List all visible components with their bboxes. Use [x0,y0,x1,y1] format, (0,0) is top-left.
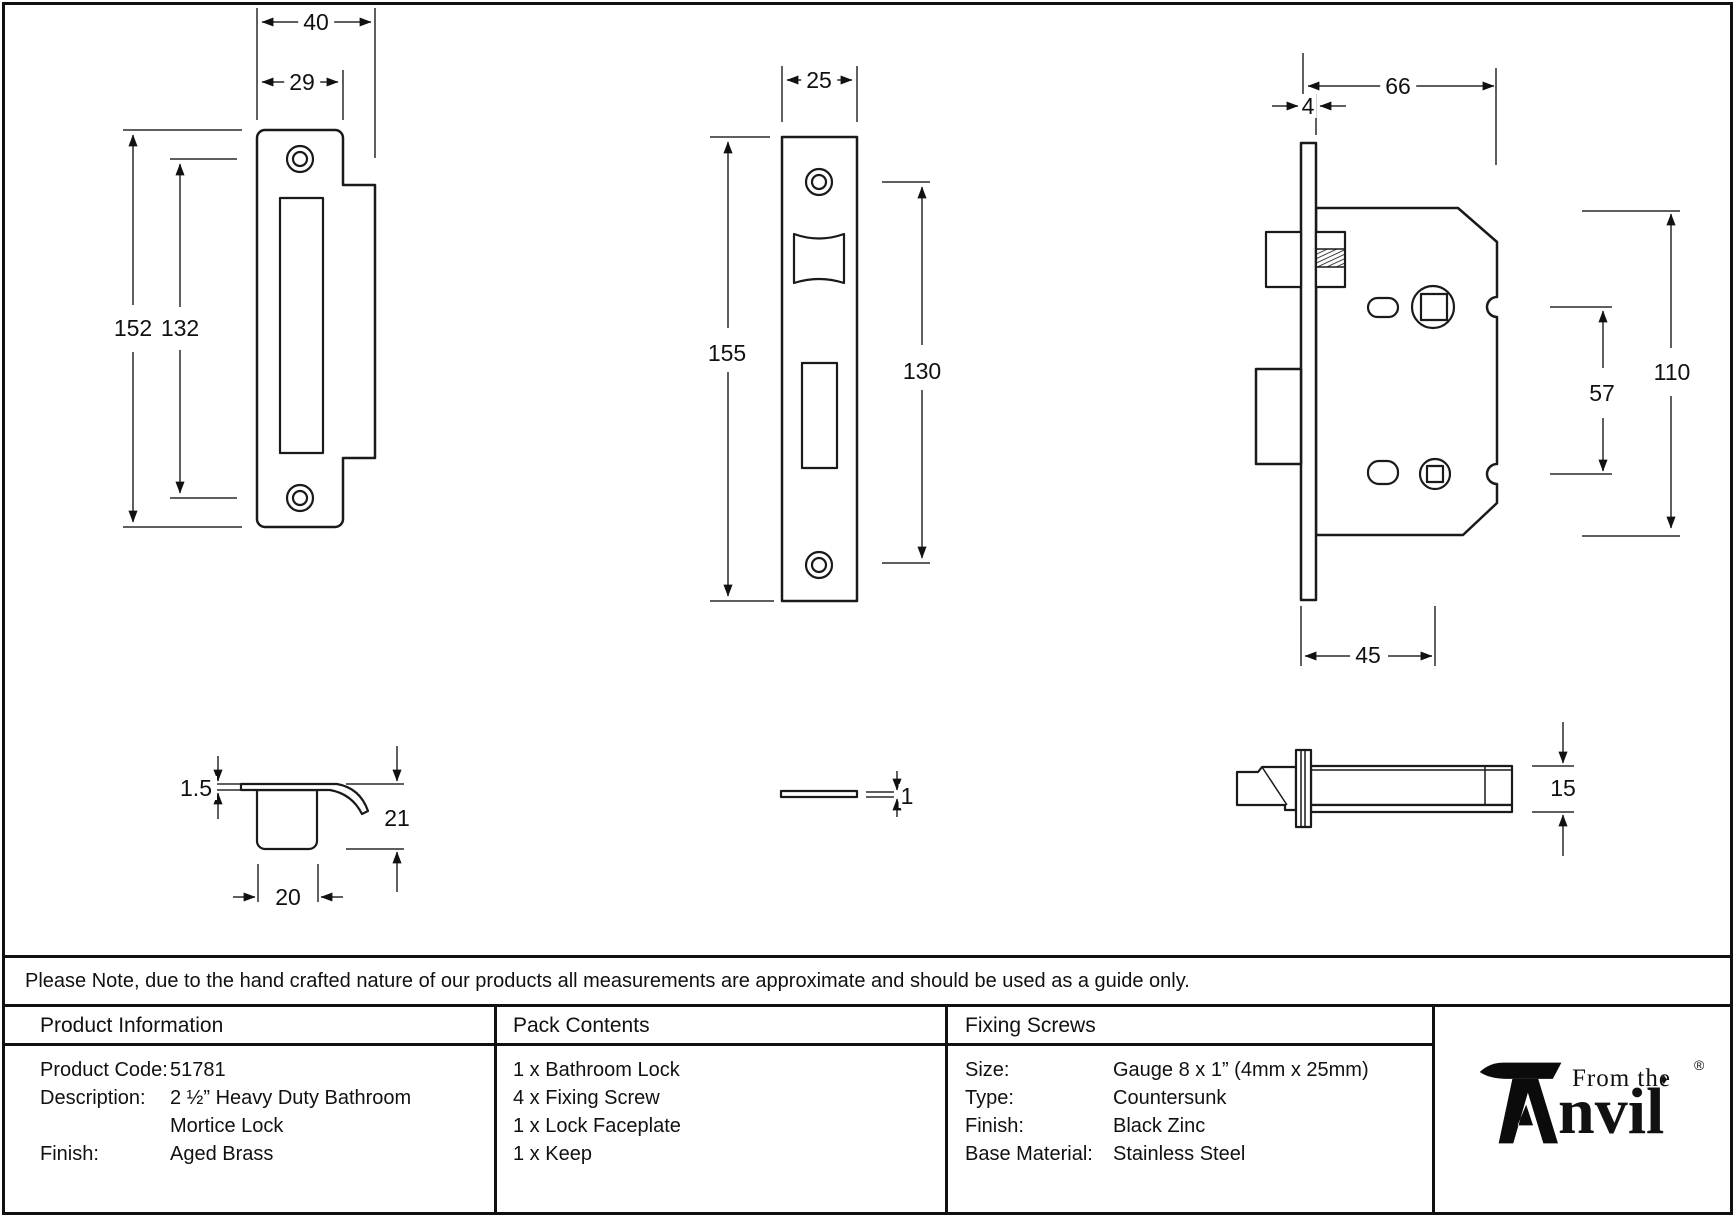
logo-name: nvil [1558,1077,1664,1147]
finish-label: Finish: [40,1141,99,1167]
pack-item-3: 1 x Lock Faceplate [513,1113,681,1139]
description-value-line1: 2 ½” Heavy Duty Bathroom [170,1085,411,1111]
dim-faceplate-thickness: 1 [899,784,916,808]
lock-side-faceplate [1296,750,1311,827]
measurement-note: Please Note, due to the hand crafted nat… [5,955,1730,1007]
lock-side-case [1311,766,1512,805]
product-code-label: Product Code: [40,1057,168,1083]
pack-item-1: 1 x Bathroom Lock [513,1057,680,1083]
description-value-line2: Mortice Lock [170,1113,283,1139]
dim-faceplate-height: 155 [703,341,751,365]
anvil-icon [1478,1060,1564,1146]
fixing-slot-top [1368,298,1398,317]
faceplate-side-bar [781,791,857,797]
finish-value: Aged Brass [170,1141,273,1167]
screw-finish-label: Finish: [965,1113,1024,1139]
faceplate-bolt-cutout [794,234,844,283]
screw-finish-value: Black Zinc [1113,1113,1205,1139]
lock-side-base-plate [1311,805,1512,812]
pack-item-2: 4 x Fixing Screw [513,1085,660,1111]
dim-keep-overall-height: 152 [109,316,157,340]
table-divider-1 [494,1007,497,1212]
screw-type-value: Countersunk [1113,1085,1226,1111]
table-divider-2 [945,1007,948,1212]
screw-material-label: Base Material: [965,1141,1093,1167]
keep-box [257,790,317,849]
dim-keep-depth: 21 [379,806,415,830]
product-code-value: 51781 [170,1057,226,1083]
dim-lock-case-height: 110 [1649,360,1696,384]
brand-logo: From the ♦ nvil ® [1432,1007,1730,1213]
logo-registered-icon: ® [1694,1057,1704,1073]
faceplate-front-drawing [690,30,970,630]
dim-keep-plate-thickness: 1.5 [175,776,217,800]
deadbolt [1256,369,1301,464]
header-fixing-screws: Fixing Screws [965,1013,1096,1039]
pack-item-4: 1 x Keep [513,1141,592,1167]
keep-slot [280,198,323,453]
note-text: Please Note, due to the hand crafted nat… [25,970,1190,993]
dim-lock-follower-spacing: 57 [1584,381,1620,405]
screw-size-label: Size: [965,1057,1009,1083]
table-header-underline [5,1043,1432,1046]
dim-faceplate-hole-spacing: 130 [898,359,946,383]
latchbolt [1266,232,1301,287]
header-product-information: Product Information [40,1013,223,1039]
lock-faceplate-strip [1301,143,1316,600]
keep-profile-drawing [140,700,460,910]
dim-keep-plate-width: 29 [284,70,320,94]
dim-keep-overall-width: 40 [298,10,334,34]
fixing-slot-bottom [1368,461,1398,484]
screw-size-value: Gauge 8 x 1” (4mm x 25mm) [1113,1057,1369,1083]
dim-lock-faceplate-thickness: 4 [1300,94,1317,118]
latch-spring-hatch [1316,249,1345,267]
dim-lock-case-depth: 66 [1380,74,1416,98]
faceplate-latch-slot [802,363,837,468]
dim-keep-box-width: 20 [270,885,306,909]
dim-keep-hole-spacing: 132 [156,316,204,340]
header-pack-contents: Pack Contents [513,1013,650,1039]
keep-front-drawing [90,0,430,560]
screw-type-label: Type: [965,1085,1014,1111]
screw-material-value: Stainless Steel [1113,1141,1245,1167]
dim-faceplate-width: 25 [801,68,837,92]
lock-body-drawing [1150,40,1735,680]
description-label: Description: [40,1085,146,1111]
dim-lock-backset: 45 [1350,643,1386,667]
dim-lock-case-thickness: 15 [1545,776,1581,800]
